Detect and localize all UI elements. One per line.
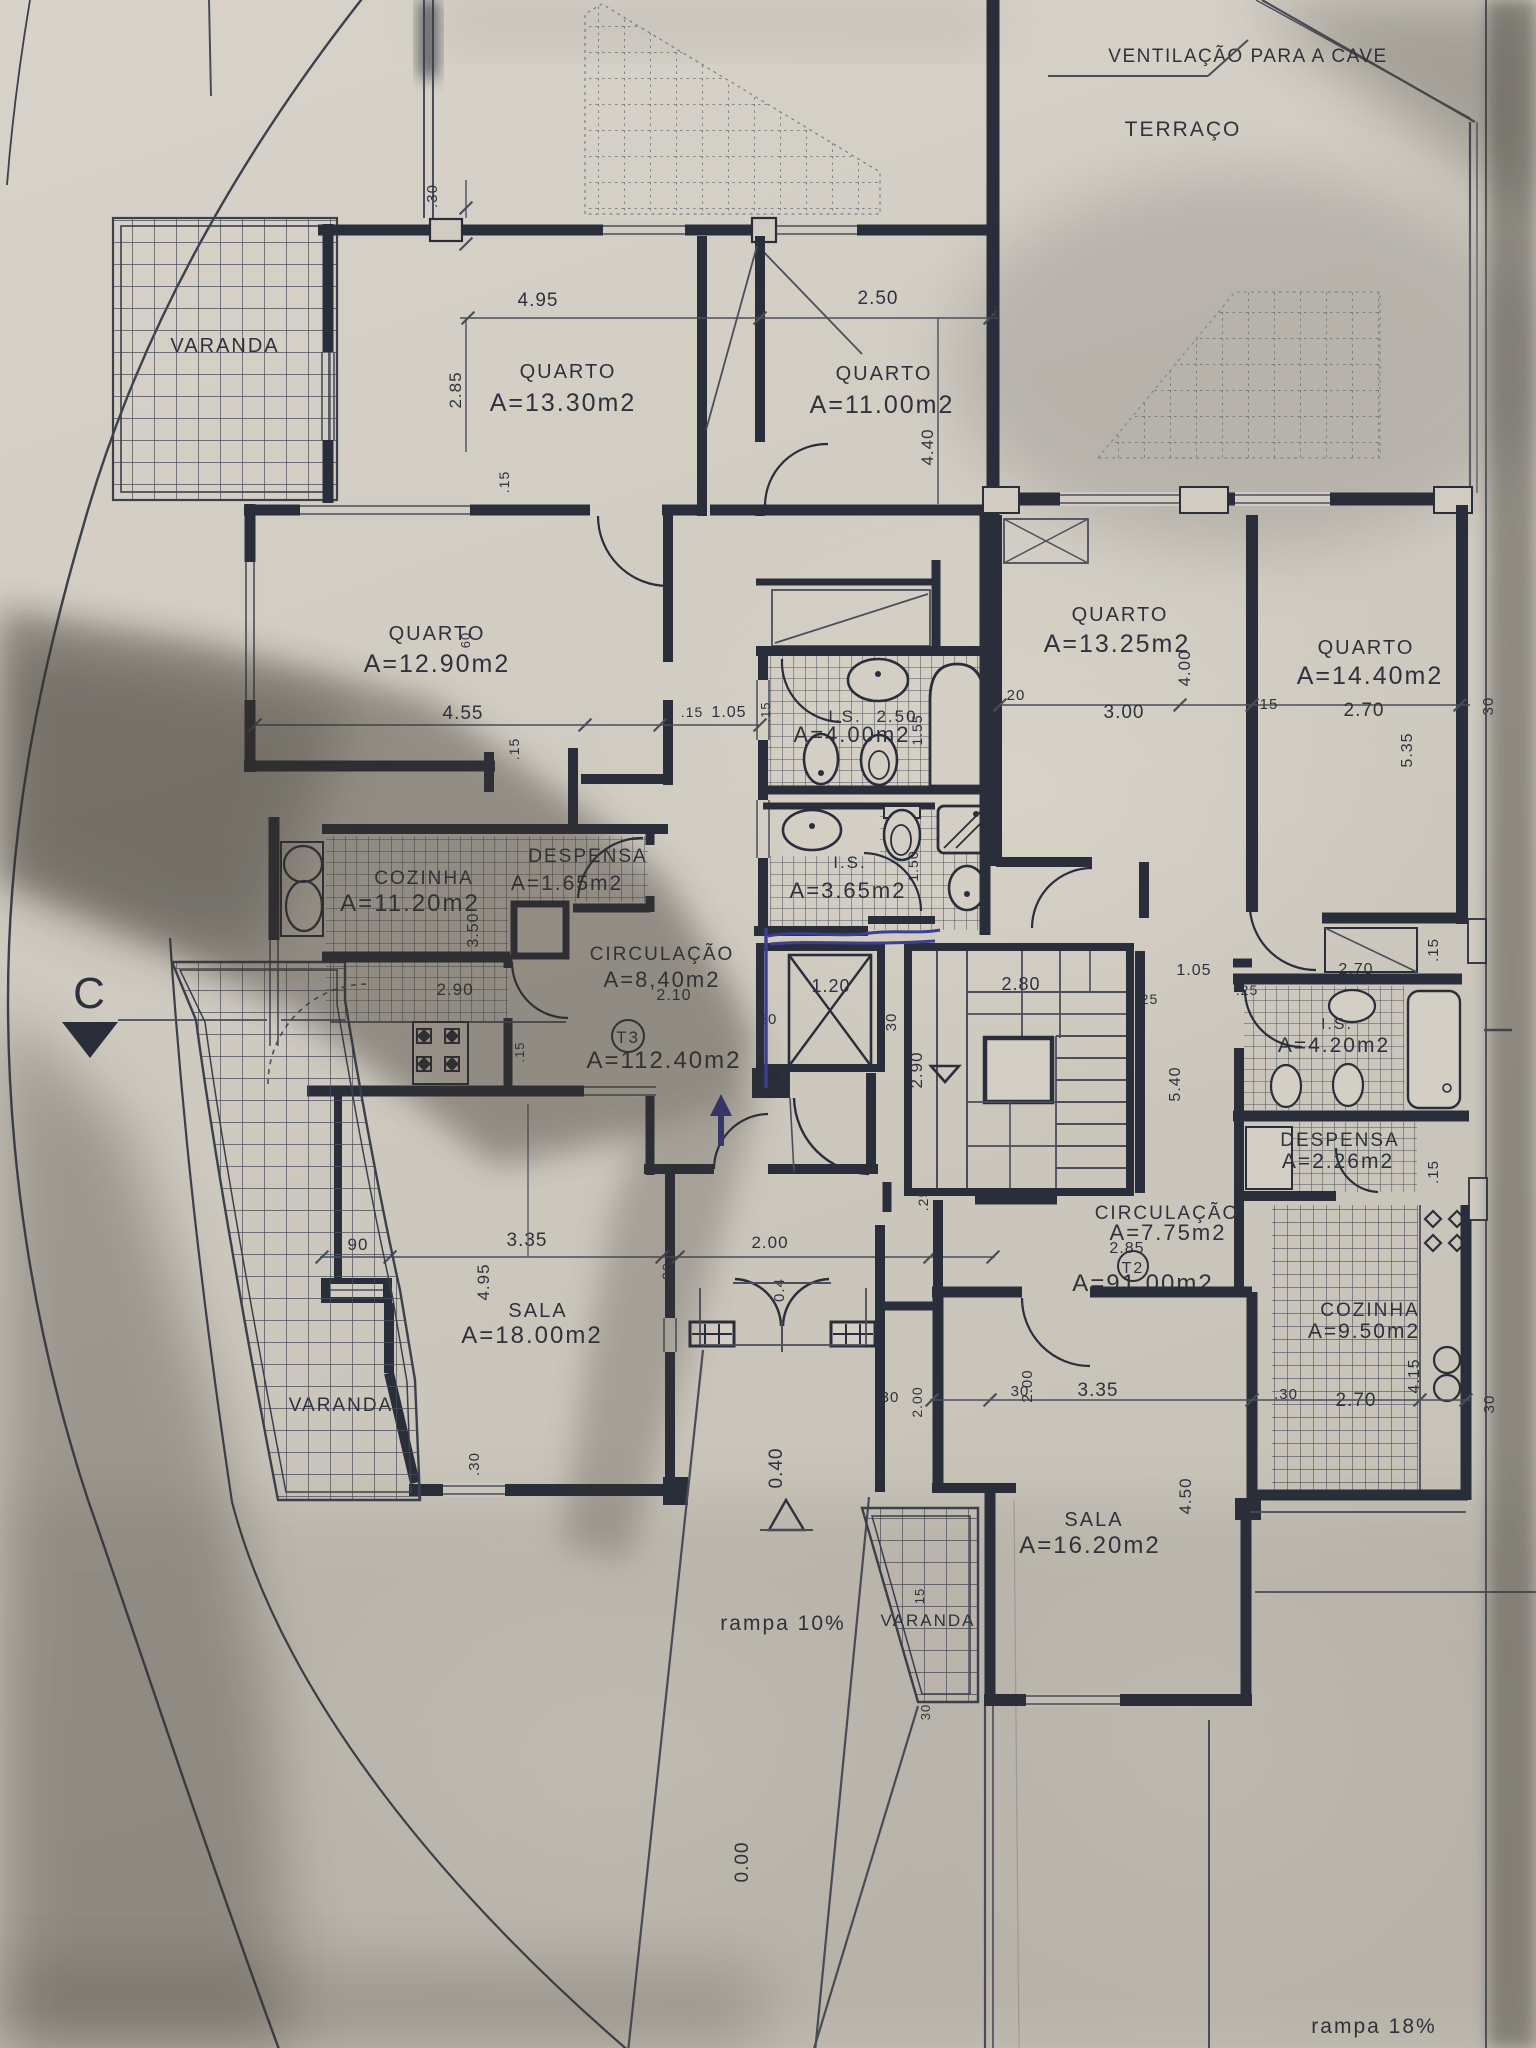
svg-text:C: C (73, 969, 107, 1018)
svg-text:4.15: 4.15 (1406, 1358, 1423, 1393)
svg-text:3.35: 3.35 (1078, 1380, 1119, 1401)
svg-text:5.40: 5.40 (1167, 1066, 1184, 1101)
svg-text:1.20: 1.20 (811, 976, 850, 996)
svg-text:.15: .15 (681, 704, 703, 720)
svg-text:2.90: 2.90 (907, 1051, 926, 1088)
svg-text:2.00: 2.00 (1019, 1369, 1036, 1402)
svg-text:.30: .30 (424, 184, 441, 208)
svg-text:0.40: 0.40 (766, 1448, 787, 1489)
svg-text:30: 30 (759, 1011, 778, 1028)
svg-text:.15: .15 (752, 288, 767, 309)
svg-text:30: 30 (883, 1013, 900, 1032)
svg-text:QUARTO: QUARTO (1072, 604, 1169, 626)
svg-text:4.95: 4.95 (518, 290, 559, 311)
svg-text:DESPENSA: DESPENSA (1280, 1130, 1399, 1151)
svg-text:A=13.25m2: A=13.25m2 (1044, 630, 1191, 658)
svg-text:VARANDA: VARANDA (170, 335, 279, 357)
svg-text:1.55: 1.55 (909, 714, 925, 745)
svg-text:4.40: 4.40 (918, 428, 937, 465)
svg-text:4.00: 4.00 (1175, 649, 1194, 686)
svg-text:1.05: 1.05 (1176, 962, 1211, 979)
svg-text:A=14.40m2: A=14.40m2 (1297, 662, 1444, 690)
svg-text:20: 20 (1007, 687, 1026, 704)
svg-text:.15: .15 (496, 471, 512, 493)
svg-text:30: 30 (881, 1389, 900, 1406)
svg-text:A=13.30m2: A=13.30m2 (490, 389, 637, 417)
svg-text:3.35: 3.35 (507, 1230, 548, 1251)
svg-text:.30: .30 (466, 1452, 483, 1476)
svg-text:2.00: 2.00 (751, 1233, 788, 1252)
svg-text:4.95: 4.95 (474, 1263, 493, 1300)
svg-text:COZINHA: COZINHA (1320, 1300, 1420, 1321)
svg-text:2.00: 2.00 (909, 1386, 925, 1417)
svg-text:2.50: 2.50 (858, 288, 899, 309)
svg-text:QUARTO: QUARTO (520, 361, 617, 383)
svg-text:A=2.26m2: A=2.26m2 (1282, 1150, 1394, 1173)
svg-text:5.35: 5.35 (1399, 732, 1416, 767)
svg-text:.25: .25 (915, 1189, 931, 1211)
svg-text:QUARTO: QUARTO (1318, 637, 1415, 659)
svg-text:.15: .15 (1425, 938, 1442, 962)
svg-text:1.50: 1.50 (905, 850, 921, 881)
svg-text:A=12.90m2: A=12.90m2 (364, 650, 511, 678)
svg-text:A=4.00m2: A=4.00m2 (794, 722, 911, 747)
svg-text:2.85: 2.85 (1109, 1240, 1144, 1257)
svg-text:0.4: 0.4 (771, 1278, 788, 1302)
svg-text:1.05: 1.05 (711, 704, 746, 721)
svg-text:2.70: 2.70 (1344, 700, 1385, 721)
svg-text:A=4.20m2: A=4.20m2 (1278, 1034, 1390, 1057)
svg-text:A=9.50m2: A=9.50m2 (1308, 1320, 1420, 1343)
svg-text:A=18.00m2: A=18.00m2 (461, 1322, 602, 1349)
svg-text:VARANDA: VARANDA (289, 1395, 393, 1416)
svg-text:15: 15 (1260, 696, 1279, 713)
svg-text:60: 60 (458, 632, 473, 648)
svg-text:I.S.: I.S. (1321, 1016, 1353, 1033)
svg-text:TERRAÇO: TERRAÇO (1125, 118, 1242, 141)
svg-text:QUARTO: QUARTO (836, 363, 933, 385)
svg-text:.15: .15 (1425, 1160, 1442, 1184)
svg-text:I.S.: I.S. (833, 853, 867, 872)
svg-text:A=11.00m2: A=11.00m2 (810, 391, 955, 419)
svg-text:2.80: 2.80 (1001, 974, 1040, 994)
svg-text:3.00: 3.00 (1104, 702, 1145, 723)
svg-text:A=3.65m2: A=3.65m2 (790, 878, 907, 903)
svg-text:30: 30 (986, 305, 1002, 323)
svg-text:2.85: 2.85 (446, 371, 465, 408)
svg-text:SALA: SALA (508, 1300, 567, 1322)
